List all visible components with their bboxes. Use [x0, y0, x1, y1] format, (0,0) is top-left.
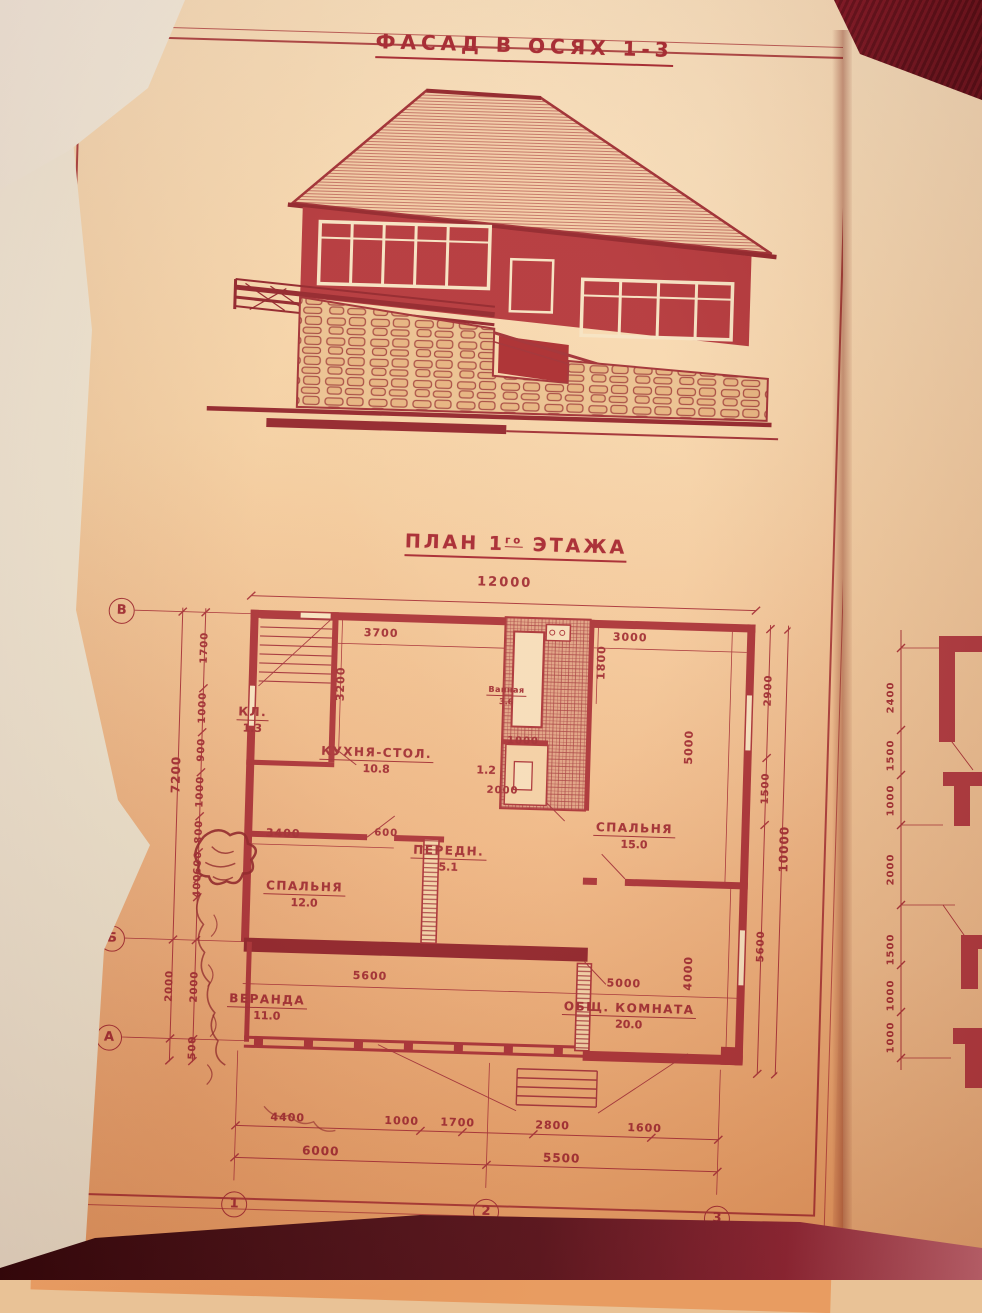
- dim-3000: 3000: [602, 630, 658, 645]
- room-label-veranda: ВЕРАНДА 11.0: [192, 986, 343, 1024]
- side-dim-2400: 2400: [886, 676, 897, 720]
- dim-1800: 1800: [594, 640, 608, 684]
- dim-5600: 5600: [342, 969, 398, 984]
- room-label-hall: ПЕРЕДН. 5.1: [403, 838, 494, 875]
- room-label-bedroom-15: СПАЛЬНЯ 15.0: [559, 815, 710, 853]
- room-label-wc: 1.2: [466, 762, 506, 777]
- page-fold-shadow: [832, 30, 852, 1230]
- room-area: 1.3: [222, 721, 282, 736]
- dim-left-900: 900: [195, 728, 207, 772]
- dim-bottom-1600: 1600: [616, 1121, 672, 1136]
- room-name: Ванная: [486, 685, 526, 697]
- plan-title-prefix: ПЛАН 1: [405, 530, 506, 555]
- plan-title-superscript: го: [505, 535, 523, 548]
- side-dim-1500b: 1500: [886, 928, 897, 972]
- room-label-bathroom: Ванная 3.6: [476, 676, 537, 707]
- dim-bottom-5500: 5500: [533, 1150, 589, 1166]
- side-dim-1000b: 1000: [886, 974, 897, 1018]
- dim-bottom-2800: 2800: [524, 1118, 580, 1133]
- adjacent-page-panel: 2400 1500 1000 2000 1500 1000 1000: [843, 0, 982, 1280]
- dim-3200: 3200: [333, 662, 347, 706]
- dim-left-1700: 1700: [199, 626, 211, 670]
- dimension-overall-width: 12000: [460, 574, 550, 592]
- dim-1000: 1000: [495, 735, 551, 748]
- room-name: ПЕРЕДН.: [411, 843, 486, 861]
- dim-2000: 2000: [474, 784, 530, 797]
- dim-left-2000-outer: 2000: [163, 964, 175, 1008]
- dim-5000-right-inner: 5000: [682, 725, 696, 769]
- dim-right-5600: 5600: [755, 924, 767, 968]
- room-label-closet: КЛ. 1.3: [222, 700, 283, 736]
- side-dim-1000: 1000: [886, 779, 897, 823]
- room-area: 1.2: [466, 763, 506, 777]
- dim-left-1000: 1000: [197, 686, 209, 730]
- side-dim-1500: 1500: [886, 734, 897, 778]
- dim-bottom-1700: 1700: [430, 1115, 486, 1130]
- dim-left-500: 500: [187, 1025, 199, 1069]
- dim-4000: 4000: [681, 951, 695, 995]
- dim-bottom-6000: 6000: [293, 1143, 349, 1159]
- floor-plan-drawing: [71, 581, 791, 1301]
- room-label-living-room: ОБЩ. КОМНАТА 20.0: [554, 995, 705, 1033]
- dim-bottom-1000: 1000: [374, 1114, 430, 1129]
- dim-left-1000b: 1000: [194, 770, 206, 814]
- room-label-bedroom-12: СПАЛЬНЯ 12.0: [229, 873, 380, 911]
- dim-right-overall-10000: 10000: [776, 828, 791, 872]
- dim-right-2900: 2900: [762, 668, 774, 712]
- blueprint-page: ФАСАД В ОСЯХ 1-3: [31, 0, 870, 1313]
- facade-drawing: [145, 71, 796, 485]
- room-name: КУХНЯ-СТОЛ.: [319, 744, 434, 763]
- dim-left-2000-inner: 2000: [188, 964, 200, 1008]
- side-dim-1000c: 1000: [886, 1016, 897, 1060]
- room-name: КЛ.: [236, 704, 269, 721]
- dim-5000: 5000: [596, 976, 652, 991]
- dim-right-1500: 1500: [760, 766, 772, 810]
- dim-600: 600: [362, 827, 410, 839]
- room-area: 3.6: [476, 696, 536, 707]
- plan-title-suffix: ЭТАЖА: [532, 534, 627, 559]
- adjacent-plan-fragment: [843, 0, 982, 1280]
- dim-bottom-4400: 4400: [260, 1110, 316, 1125]
- room-area: 5.1: [403, 859, 493, 875]
- dim-left-overall-7200: 7200: [168, 752, 183, 796]
- side-dim-2000: 2000: [886, 848, 897, 892]
- dim-left-400: 400: [191, 864, 203, 908]
- room-name: СПАЛЬНЯ: [264, 878, 345, 896]
- room-name: СПАЛЬНЯ: [594, 820, 675, 838]
- room-name: ВЕРАНДА: [227, 991, 307, 1009]
- dim-3700: 3700: [353, 626, 409, 641]
- dim-3400: 3400: [255, 826, 311, 841]
- room-label-kitchen: КУХНЯ-СТОЛ. 10.8: [301, 739, 452, 777]
